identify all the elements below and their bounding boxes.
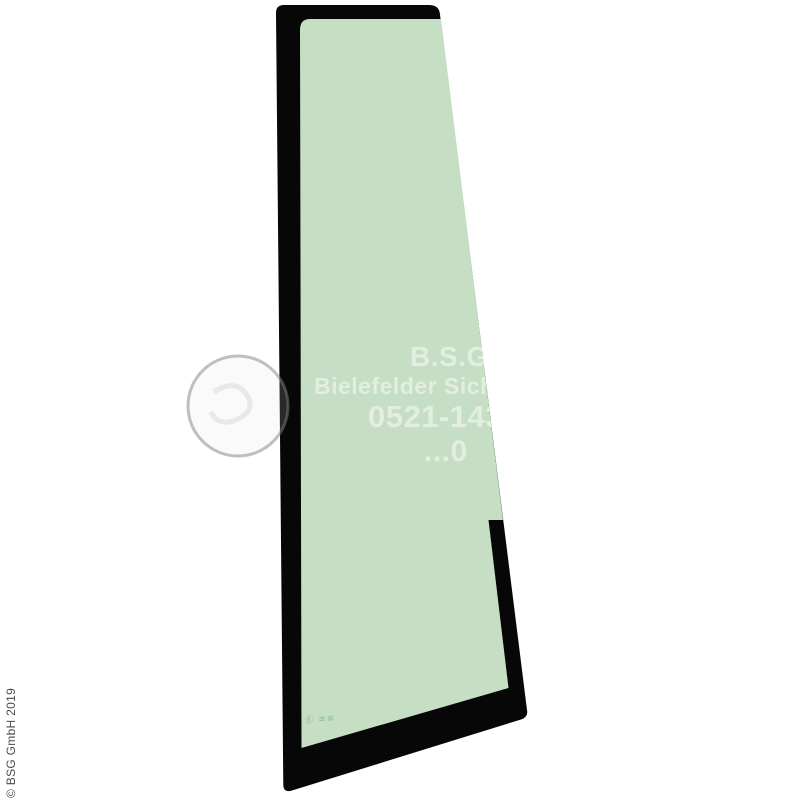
certification-stamp: Ⓔ ≋≋ bbox=[304, 713, 335, 725]
glass-product-image: B.S.G. Bielefelder Sicherh 0521-14385 ..… bbox=[0, 0, 800, 800]
product-shot: B.S.G. Bielefelder Sicherh 0521-14385 ..… bbox=[0, 0, 800, 800]
logo-circle-outline bbox=[188, 356, 288, 456]
logo-circle-watermark bbox=[188, 356, 288, 456]
copyright-text: © BSG GmbH 2019 bbox=[4, 688, 18, 798]
watermark-phone-suffix: ...0 bbox=[424, 435, 468, 468]
